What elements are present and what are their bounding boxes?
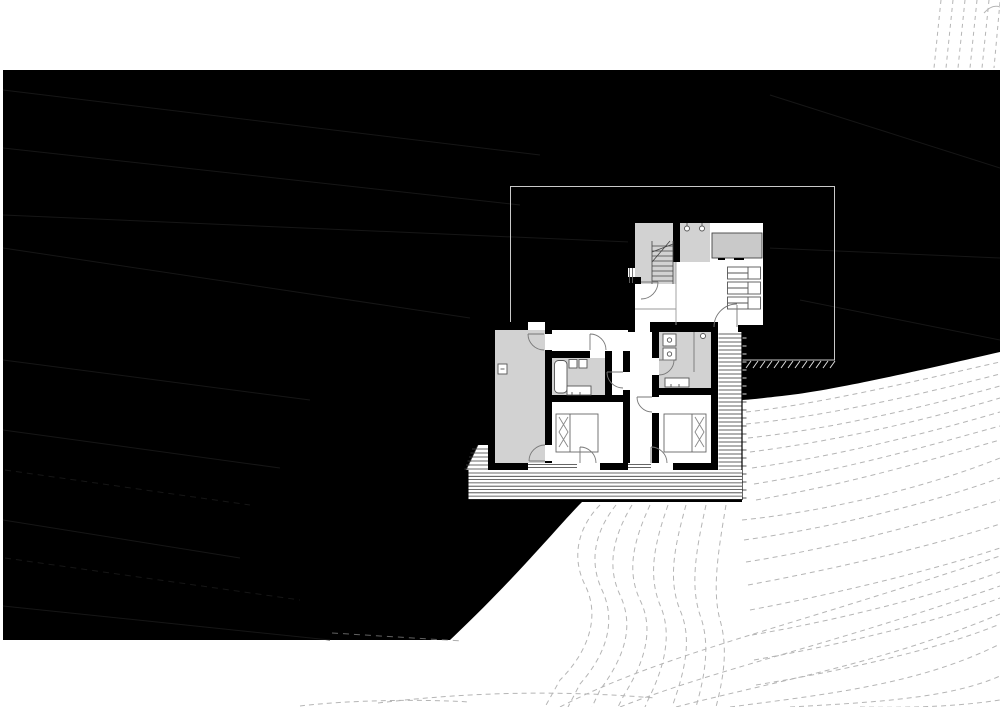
corner-contours [934, 0, 1000, 68]
site-plan-drawing [0, 0, 1000, 707]
site-plan-sheet [0, 0, 1000, 707]
ceiling-light-icon [701, 334, 706, 339]
shelving-units [728, 267, 761, 309]
bathtub [555, 361, 568, 394]
wardrobe-unit [712, 233, 762, 259]
shelf-unit [728, 267, 761, 279]
wc-cistern [579, 360, 587, 369]
wc-cistern [569, 360, 577, 369]
bed-bedroom-2 [664, 414, 706, 452]
utility-room-floor [495, 330, 545, 463]
utility-panel [498, 364, 507, 374]
deck [468, 470, 742, 500]
deck-fill [468, 470, 742, 500]
wc-basin [665, 378, 689, 387]
coat-hook-icon [700, 226, 705, 231]
corner-contour-solid [984, 6, 1000, 13]
coat-hook-icon [685, 226, 690, 231]
bed-bedroom-1 [556, 414, 598, 452]
stair-ticks-lower [743, 402, 747, 498]
shelf-unit [728, 282, 761, 294]
shelf-unit [728, 297, 761, 309]
basin-counter [567, 386, 591, 395]
